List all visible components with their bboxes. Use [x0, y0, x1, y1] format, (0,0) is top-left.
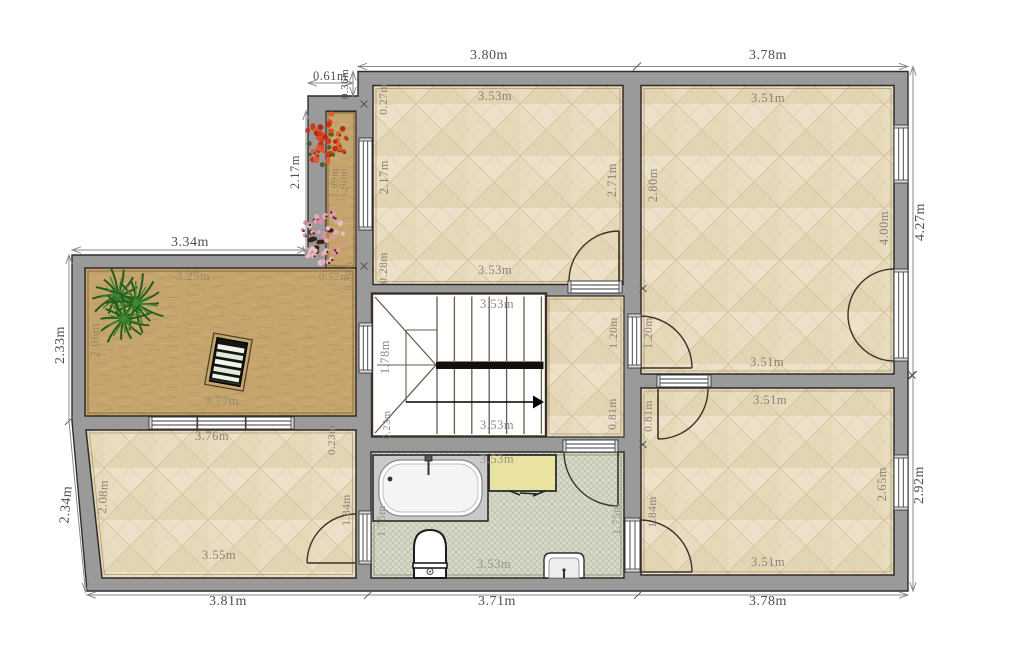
- svg-text:4.27m: 4.27m: [913, 203, 928, 241]
- svg-text:1.90m: 1.90m: [338, 168, 350, 198]
- svg-text:3.78m: 3.78m: [749, 594, 787, 609]
- svg-text:0.81m: 0.81m: [607, 398, 619, 430]
- svg-text:0.23m: 0.23m: [382, 410, 393, 439]
- svg-text:2.34m: 2.34m: [57, 485, 75, 524]
- svg-text:3.51m: 3.51m: [751, 555, 785, 569]
- svg-text:1.75m: 1.75m: [376, 505, 388, 537]
- svg-text:3.53m: 3.53m: [477, 557, 511, 571]
- svg-text:2.17m: 2.17m: [377, 160, 391, 194]
- svg-text:2.08m: 2.08m: [95, 479, 111, 514]
- svg-text:1.84m: 1.84m: [341, 494, 353, 526]
- svg-text:3.53m: 3.53m: [478, 263, 512, 277]
- svg-text:4.00m: 4.00m: [877, 211, 891, 245]
- svg-text:3.76m: 3.76m: [195, 429, 229, 443]
- svg-text:2.92m: 2.92m: [912, 466, 927, 504]
- svg-text:0.28m: 0.28m: [378, 252, 390, 284]
- svg-text:3.51m: 3.51m: [750, 355, 784, 369]
- svg-text:2.17m: 2.17m: [288, 155, 302, 189]
- svg-text:3.53m: 3.53m: [480, 452, 514, 466]
- svg-text:3.34m: 3.34m: [171, 235, 209, 250]
- svg-text:0.38m: 0.38m: [344, 261, 355, 290]
- svg-text:3.51m: 3.51m: [751, 91, 785, 105]
- svg-text:3.25m: 3.25m: [176, 269, 210, 283]
- svg-text:0.81m: 0.81m: [643, 400, 655, 432]
- svg-text:1.20m: 1.20m: [643, 317, 655, 349]
- svg-text:2.65m: 2.65m: [875, 467, 889, 501]
- svg-text:3.55m: 3.55m: [202, 548, 236, 562]
- svg-text:2.71m: 2.71m: [605, 163, 619, 197]
- svg-text:3.77m: 3.77m: [205, 394, 239, 408]
- svg-text:0.27m: 0.27m: [378, 83, 390, 115]
- svg-text:1.20m: 1.20m: [608, 317, 620, 349]
- svg-text:3.78m: 3.78m: [749, 48, 787, 63]
- svg-text:3.53m: 3.53m: [480, 297, 514, 311]
- svg-text:1.78m: 1.78m: [378, 340, 392, 374]
- svg-text:2.06m: 2.06m: [88, 323, 102, 357]
- svg-text:2.33m: 2.33m: [53, 326, 68, 364]
- svg-text:0.23m: 0.23m: [326, 425, 338, 455]
- svg-text:3.71m: 3.71m: [478, 594, 516, 609]
- svg-text:3.81m: 3.81m: [209, 594, 247, 609]
- svg-text:3.53m: 3.53m: [478, 89, 512, 103]
- svg-text:2.80m: 2.80m: [646, 168, 660, 202]
- svg-text:1.75m: 1.75m: [611, 503, 623, 535]
- svg-text:3.80m: 3.80m: [470, 48, 508, 63]
- svg-text:3.51m: 3.51m: [753, 393, 787, 407]
- svg-text:1.84m: 1.84m: [647, 496, 659, 528]
- svg-text:0.36m: 0.36m: [339, 69, 351, 99]
- svg-text:3.53m: 3.53m: [480, 418, 514, 432]
